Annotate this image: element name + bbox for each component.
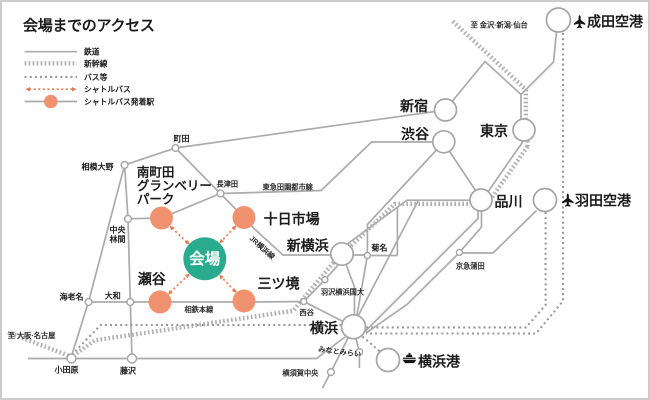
svg-text:長津田: 長津田 [217, 179, 239, 188]
svg-text:十日市場: 十日市場 [264, 211, 320, 227]
svg-text:バス等: バス等 [84, 72, 108, 82]
svg-text:羽沢横浜国大: 羽沢横浜国大 [321, 287, 365, 296]
svg-text:三ツ境: 三ツ境 [258, 276, 300, 292]
svg-text:横須賀中央: 横須賀中央 [282, 369, 319, 378]
svg-text:町田: 町田 [174, 135, 190, 144]
svg-text:大和: 大和 [105, 291, 121, 301]
svg-text:藤沢: 藤沢 [119, 366, 137, 376]
svg-text:東急田園都市線: 東急田園都市線 [262, 182, 314, 191]
svg-text:小田原: 小田原 [54, 365, 79, 375]
svg-text:相模大野: 相模大野 [82, 162, 114, 172]
svg-text:林間: 林間 [110, 234, 126, 244]
svg-text:東京: 東京 [480, 123, 508, 139]
svg-text:パーク: パーク [137, 193, 175, 207]
svg-text:京急蒲田: 京急蒲田 [456, 261, 485, 270]
svg-text:シャトルバス: シャトルバス [84, 85, 131, 94]
svg-text:会場: 会場 [189, 249, 221, 268]
svg-text:会場までのアクセス: 会場までのアクセス [23, 17, 155, 35]
svg-text:みなとみらい: みなとみらい [318, 345, 362, 359]
svg-text:渋谷: 渋谷 [401, 126, 430, 142]
svg-text:至 金沢·新潟·仙台: 至 金沢·新潟·仙台 [471, 20, 529, 29]
svg-text:西谷: 西谷 [300, 308, 315, 317]
svg-text:中央: 中央 [110, 225, 127, 235]
svg-text:グランベリー: グランベリー [137, 178, 212, 193]
svg-text:横浜港: 横浜港 [418, 353, 461, 369]
svg-text:羽田空港: 羽田空港 [575, 193, 632, 209]
svg-text:瀬谷: 瀬谷 [138, 271, 167, 287]
svg-text:相鉄本線: 相鉄本線 [185, 305, 215, 314]
svg-text:海老名: 海老名 [60, 292, 84, 302]
svg-text:新幹線: 新幹線 [83, 58, 108, 68]
svg-text:鉄道: 鉄道 [83, 47, 100, 57]
svg-text:南町田: 南町田 [137, 165, 175, 180]
svg-text:新横浜: 新横浜 [286, 238, 329, 254]
svg-text:品川: 品川 [495, 194, 523, 210]
svg-text:横浜: 横浜 [310, 320, 338, 336]
svg-text:至 大阪·名古屋: 至 大阪·名古屋 [8, 331, 56, 340]
svg-text:新宿: 新宿 [399, 98, 428, 114]
svg-text:成田空港: 成田空港 [587, 14, 644, 30]
svg-text:菊名: 菊名 [370, 243, 387, 253]
svg-text:JR横浜線: JR横浜線 [248, 234, 277, 262]
svg-text:シャトルバス発着駅: シャトルバス発着駅 [84, 97, 154, 107]
